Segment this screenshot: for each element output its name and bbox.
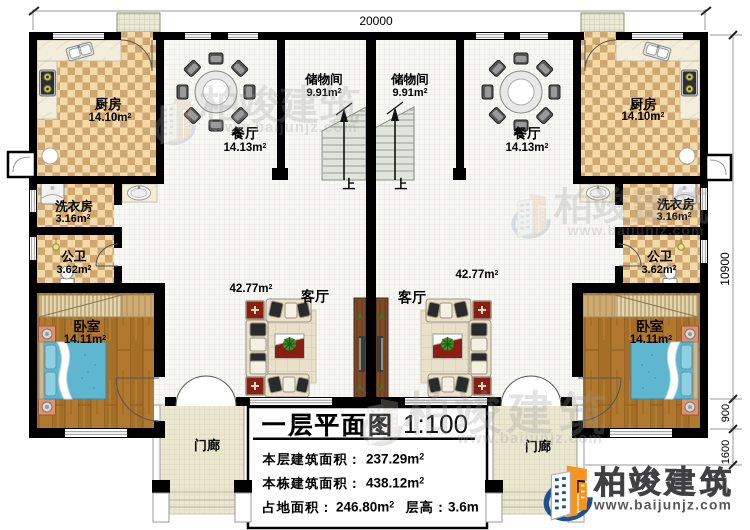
svg-text:3.62m2: 3.62m2	[641, 264, 676, 276]
svg-text:14.13m2: 14.13m2	[506, 142, 549, 154]
svg-text:20000: 20000	[359, 14, 393, 28]
svg-text:14.11m2: 14.11m2	[630, 334, 672, 346]
svg-text:14.11m2: 14.11m2	[64, 334, 106, 346]
svg-text:www.baijunjz.com: www.baijunjz.com	[211, 119, 357, 136]
svg-text:3.62m2: 3.62m2	[56, 264, 91, 276]
svg-text:9.91m2: 9.91m2	[392, 87, 427, 99]
svg-text:237.29m2: 237.29m2	[366, 452, 424, 467]
svg-text:900: 900	[720, 404, 732, 422]
svg-text:10900: 10900	[718, 252, 732, 286]
svg-text:www.baijunjz.com: www.baijunjz.com	[567, 222, 705, 238]
svg-text:42.77m2: 42.77m2	[456, 269, 499, 281]
svg-text:14.10m2: 14.10m2	[89, 112, 132, 124]
svg-text:www.baijunjz.com: www.baijunjz.com	[593, 498, 732, 513]
svg-text:3.6m: 3.6m	[448, 500, 479, 515]
svg-text:438.12m2: 438.12m2	[366, 476, 424, 491]
svg-text:3.16m2: 3.16m2	[55, 213, 90, 225]
svg-text:14.13m2: 14.13m2	[224, 142, 267, 154]
svg-text:42.77m2: 42.77m2	[230, 283, 273, 295]
svg-text:www.baijunjz.com: www.baijunjz.com	[456, 430, 602, 447]
svg-text:14.10m2: 14.10m2	[622, 111, 665, 123]
svg-text:246.80m2: 246.80m2	[336, 500, 394, 515]
svg-text:1600: 1600	[720, 440, 732, 464]
